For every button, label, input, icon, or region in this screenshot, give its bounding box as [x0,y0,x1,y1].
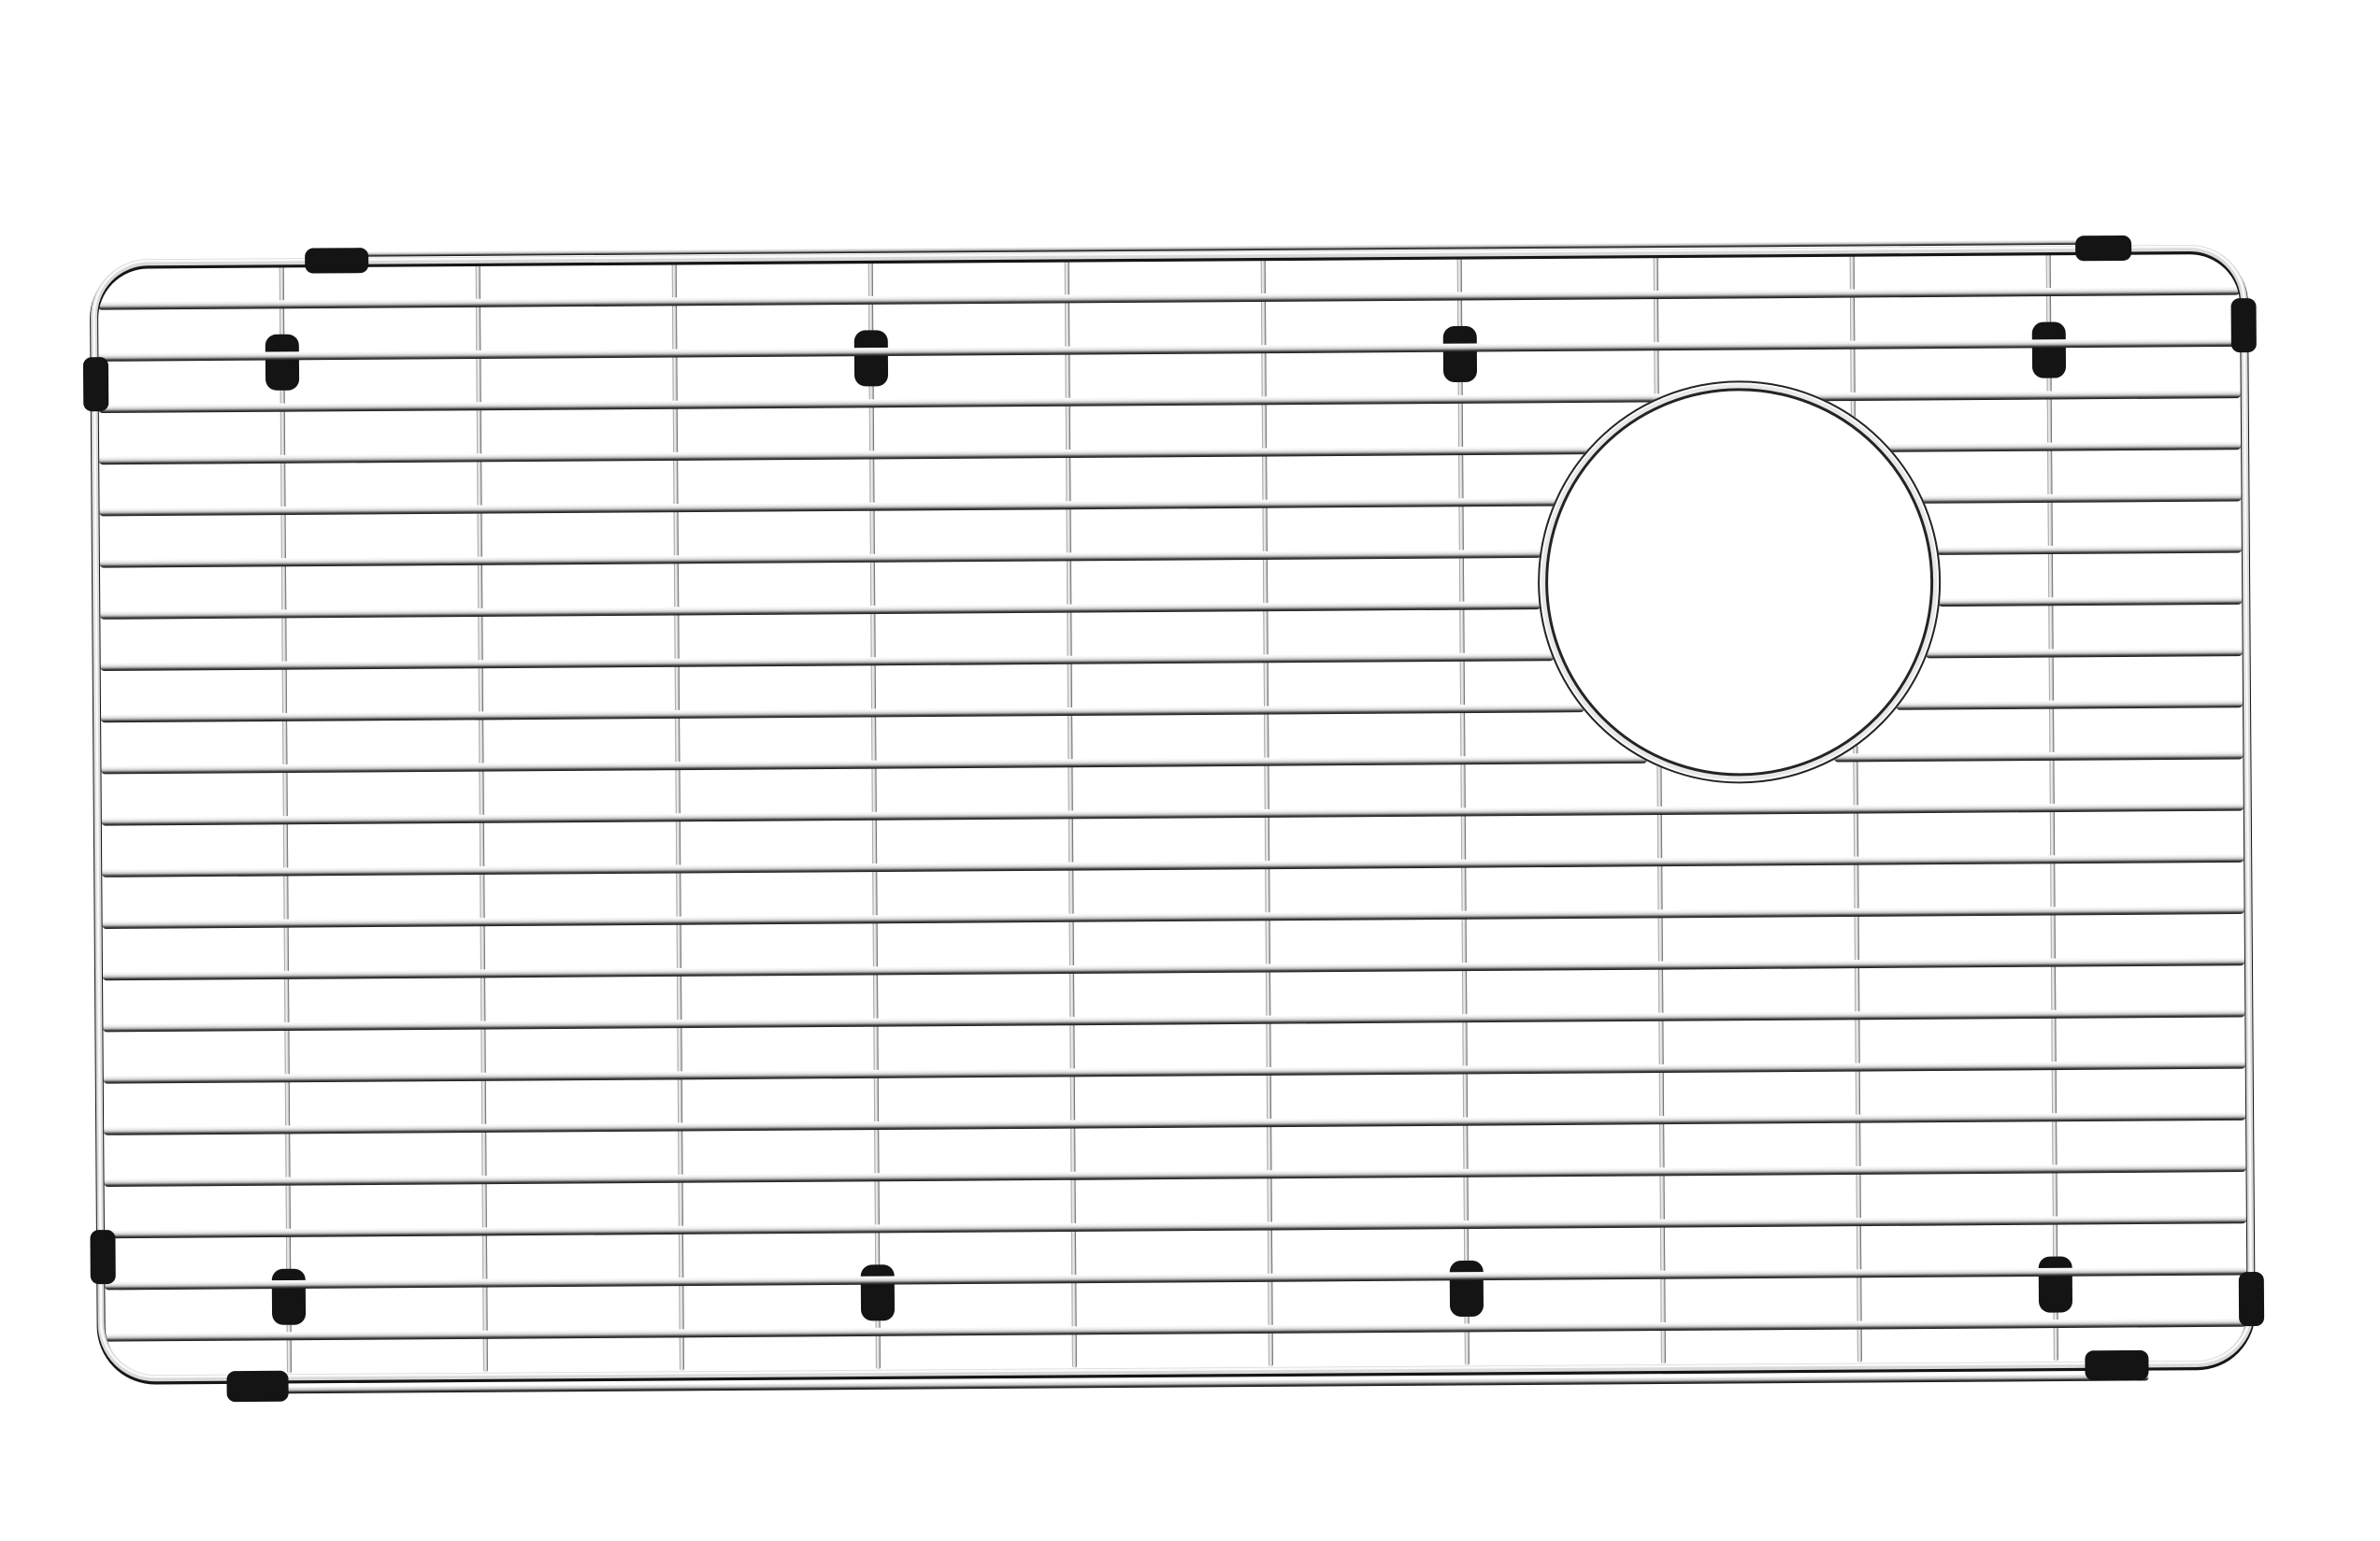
horizontal-wire [104,1163,2246,1187]
horizontal-wire [105,1319,2247,1342]
horizontal-wire [99,498,1556,517]
horizontal-wire [99,549,1541,568]
horizontal-wire [98,393,1662,413]
rubber-foot-clip [2039,1256,2072,1312]
rubber-foot-clip [861,1264,895,1320]
horizontal-wire [103,1008,2245,1032]
horizontal-wire [104,1215,2246,1238]
grid-root [82,235,2265,1403]
right-top-sleeve [2230,298,2256,352]
rubber-foot-clip [854,330,888,386]
horizontal-wire [99,446,1590,464]
rubber-foot-clip [1450,1261,1484,1317]
horizontal-wire [105,1266,2247,1290]
horizontal-wire [100,601,1541,620]
rubber-foot-clip [1443,326,1477,382]
horizontal-wire [102,854,2244,878]
horizontal-wire [97,287,2240,310]
bottom-left-sleeve [226,1371,288,1402]
top-right-sleeve [2075,235,2131,261]
horizontal-wire [100,652,1554,671]
horizontal-wire [102,906,2244,929]
horizontal-wire [1896,699,2244,710]
horizontal-wire [104,1112,2246,1135]
rubber-foot-clip [272,1269,306,1325]
horizontal-wire [1887,441,2242,452]
horizontal-wire [1814,390,2241,401]
horizontal-wire [101,704,1584,722]
rubber-foot-clip [2032,321,2066,378]
left-bottom-sleeve [90,1230,115,1284]
bottom-right-sleeve [2085,1350,2148,1380]
left-top-sleeve [83,357,108,411]
horizontal-wire [1921,492,2242,503]
horizontal-wire [102,957,2244,980]
right-bottom-sleeve [2239,1272,2264,1326]
product-photo [0,0,2380,1541]
horizontal-wire [1936,545,2242,555]
horizontal-wire [1834,750,2244,762]
horizontal-wire [101,803,2244,826]
horizontal-wire [98,338,2241,362]
vertical-wire [1654,255,1659,400]
top-left-sleeve [305,248,368,273]
horizontal-wire [1926,648,2243,658]
rubber-foot-clip [265,335,299,391]
horizontal-wire [1938,596,2243,606]
horizontal-wire [103,1061,2245,1084]
sink-grid-illustration [0,0,2380,1541]
